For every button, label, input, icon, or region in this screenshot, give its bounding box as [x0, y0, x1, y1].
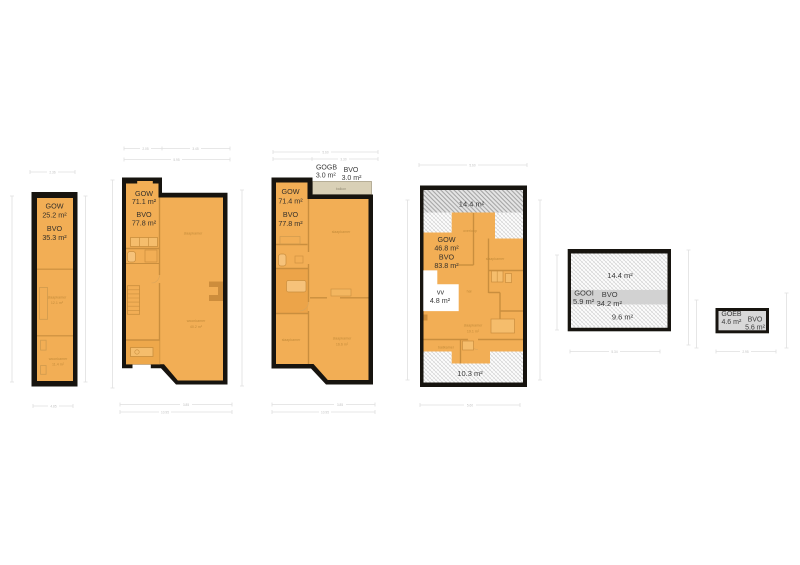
svg-text:woonkamer: woonkamer [187, 319, 206, 323]
svg-text:16.6 m²: 16.6 m² [336, 343, 349, 347]
svg-text:slaapkamer: slaapkamer [184, 232, 203, 236]
svg-text:woonkamer: woonkamer [49, 357, 68, 361]
svg-text:slaapkamer: slaapkamer [48, 296, 67, 300]
svg-text:2.36: 2.36 [49, 171, 55, 175]
svg-text:40.2 m²: 40.2 m² [190, 325, 203, 329]
svg-text:4.6 m²: 4.6 m² [721, 319, 742, 326]
svg-text:5.60: 5.60 [467, 404, 473, 408]
svg-text:11.4 m²: 11.4 m² [52, 363, 65, 367]
svg-text:12.1 m²: 12.1 m² [51, 301, 64, 305]
svg-text:GOW: GOW [46, 202, 64, 211]
svg-text:77.8 m²: 77.8 m² [132, 219, 157, 228]
svg-text:BVO: BVO [748, 316, 763, 323]
svg-text:3.85: 3.85 [337, 403, 343, 407]
svg-text:BVO: BVO [602, 290, 618, 299]
svg-text:slaapkamer: slaapkamer [282, 338, 301, 342]
svg-text:3.85: 3.85 [183, 403, 189, 407]
svg-text:GOGB: GOGB [316, 165, 337, 172]
svg-text:GOW: GOW [282, 187, 300, 196]
svg-text:77.8 m²: 77.8 m² [278, 219, 303, 228]
svg-text:10.95: 10.95 [161, 411, 169, 415]
svg-text:slaapkamer: slaapkamer [333, 337, 352, 341]
svg-text:71.4 m²: 71.4 m² [278, 197, 303, 206]
svg-text:71.1 m²: 71.1 m² [132, 197, 157, 206]
svg-text:5.9 m²: 5.9 m² [573, 297, 595, 306]
svg-text:3.0 m²: 3.0 m² [342, 175, 363, 182]
svg-text:5.6 m²: 5.6 m² [745, 325, 766, 332]
svg-text:19.1 m²: 19.1 m² [467, 330, 480, 334]
svg-text:overloop: overloop [463, 229, 477, 233]
svg-text:46.8 m²: 46.8 m² [434, 244, 459, 253]
svg-text:25.2 m²: 25.2 m² [42, 211, 67, 220]
svg-text:10.95: 10.95 [321, 411, 329, 415]
svg-text:BVO: BVO [47, 224, 63, 233]
svg-text:BVO: BVO [344, 167, 359, 174]
svg-text:5.95: 5.95 [173, 158, 179, 162]
svg-text:4.8 m²: 4.8 m² [430, 296, 451, 305]
svg-text:10.3 m²: 10.3 m² [457, 369, 483, 378]
svg-text:14.4 m²: 14.4 m² [459, 200, 485, 209]
svg-text:BVO: BVO [283, 210, 299, 219]
svg-text:hal: hal [467, 290, 472, 294]
svg-text:3.45: 3.45 [192, 147, 198, 151]
svg-text:slaapkamer: slaapkamer [464, 324, 483, 328]
svg-text:balkon: balkon [336, 187, 347, 191]
svg-text:slaapkamer: slaapkamer [332, 230, 351, 234]
svg-text:83.8 m²: 83.8 m² [434, 261, 459, 270]
svg-text:5.34: 5.34 [611, 350, 617, 354]
svg-text:14.4 m²: 14.4 m² [607, 271, 633, 280]
svg-text:34.2 m²: 34.2 m² [597, 299, 623, 308]
svg-text:5.60: 5.60 [322, 151, 328, 155]
svg-text:3.30: 3.30 [340, 158, 346, 162]
svg-text:4.85: 4.85 [50, 405, 56, 409]
svg-text:5.60: 5.60 [469, 164, 475, 168]
svg-text:slaapkamer: slaapkamer [486, 257, 505, 261]
svg-text:badkamer: badkamer [438, 346, 455, 350]
svg-text:GOEB: GOEB [721, 311, 742, 318]
svg-text:3.0 m²: 3.0 m² [316, 173, 337, 180]
svg-text:2.95: 2.95 [742, 350, 748, 354]
svg-text:2.05: 2.05 [142, 147, 148, 151]
svg-text:35.3 m²: 35.3 m² [42, 233, 67, 242]
svg-text:9.6 m²: 9.6 m² [612, 313, 634, 322]
